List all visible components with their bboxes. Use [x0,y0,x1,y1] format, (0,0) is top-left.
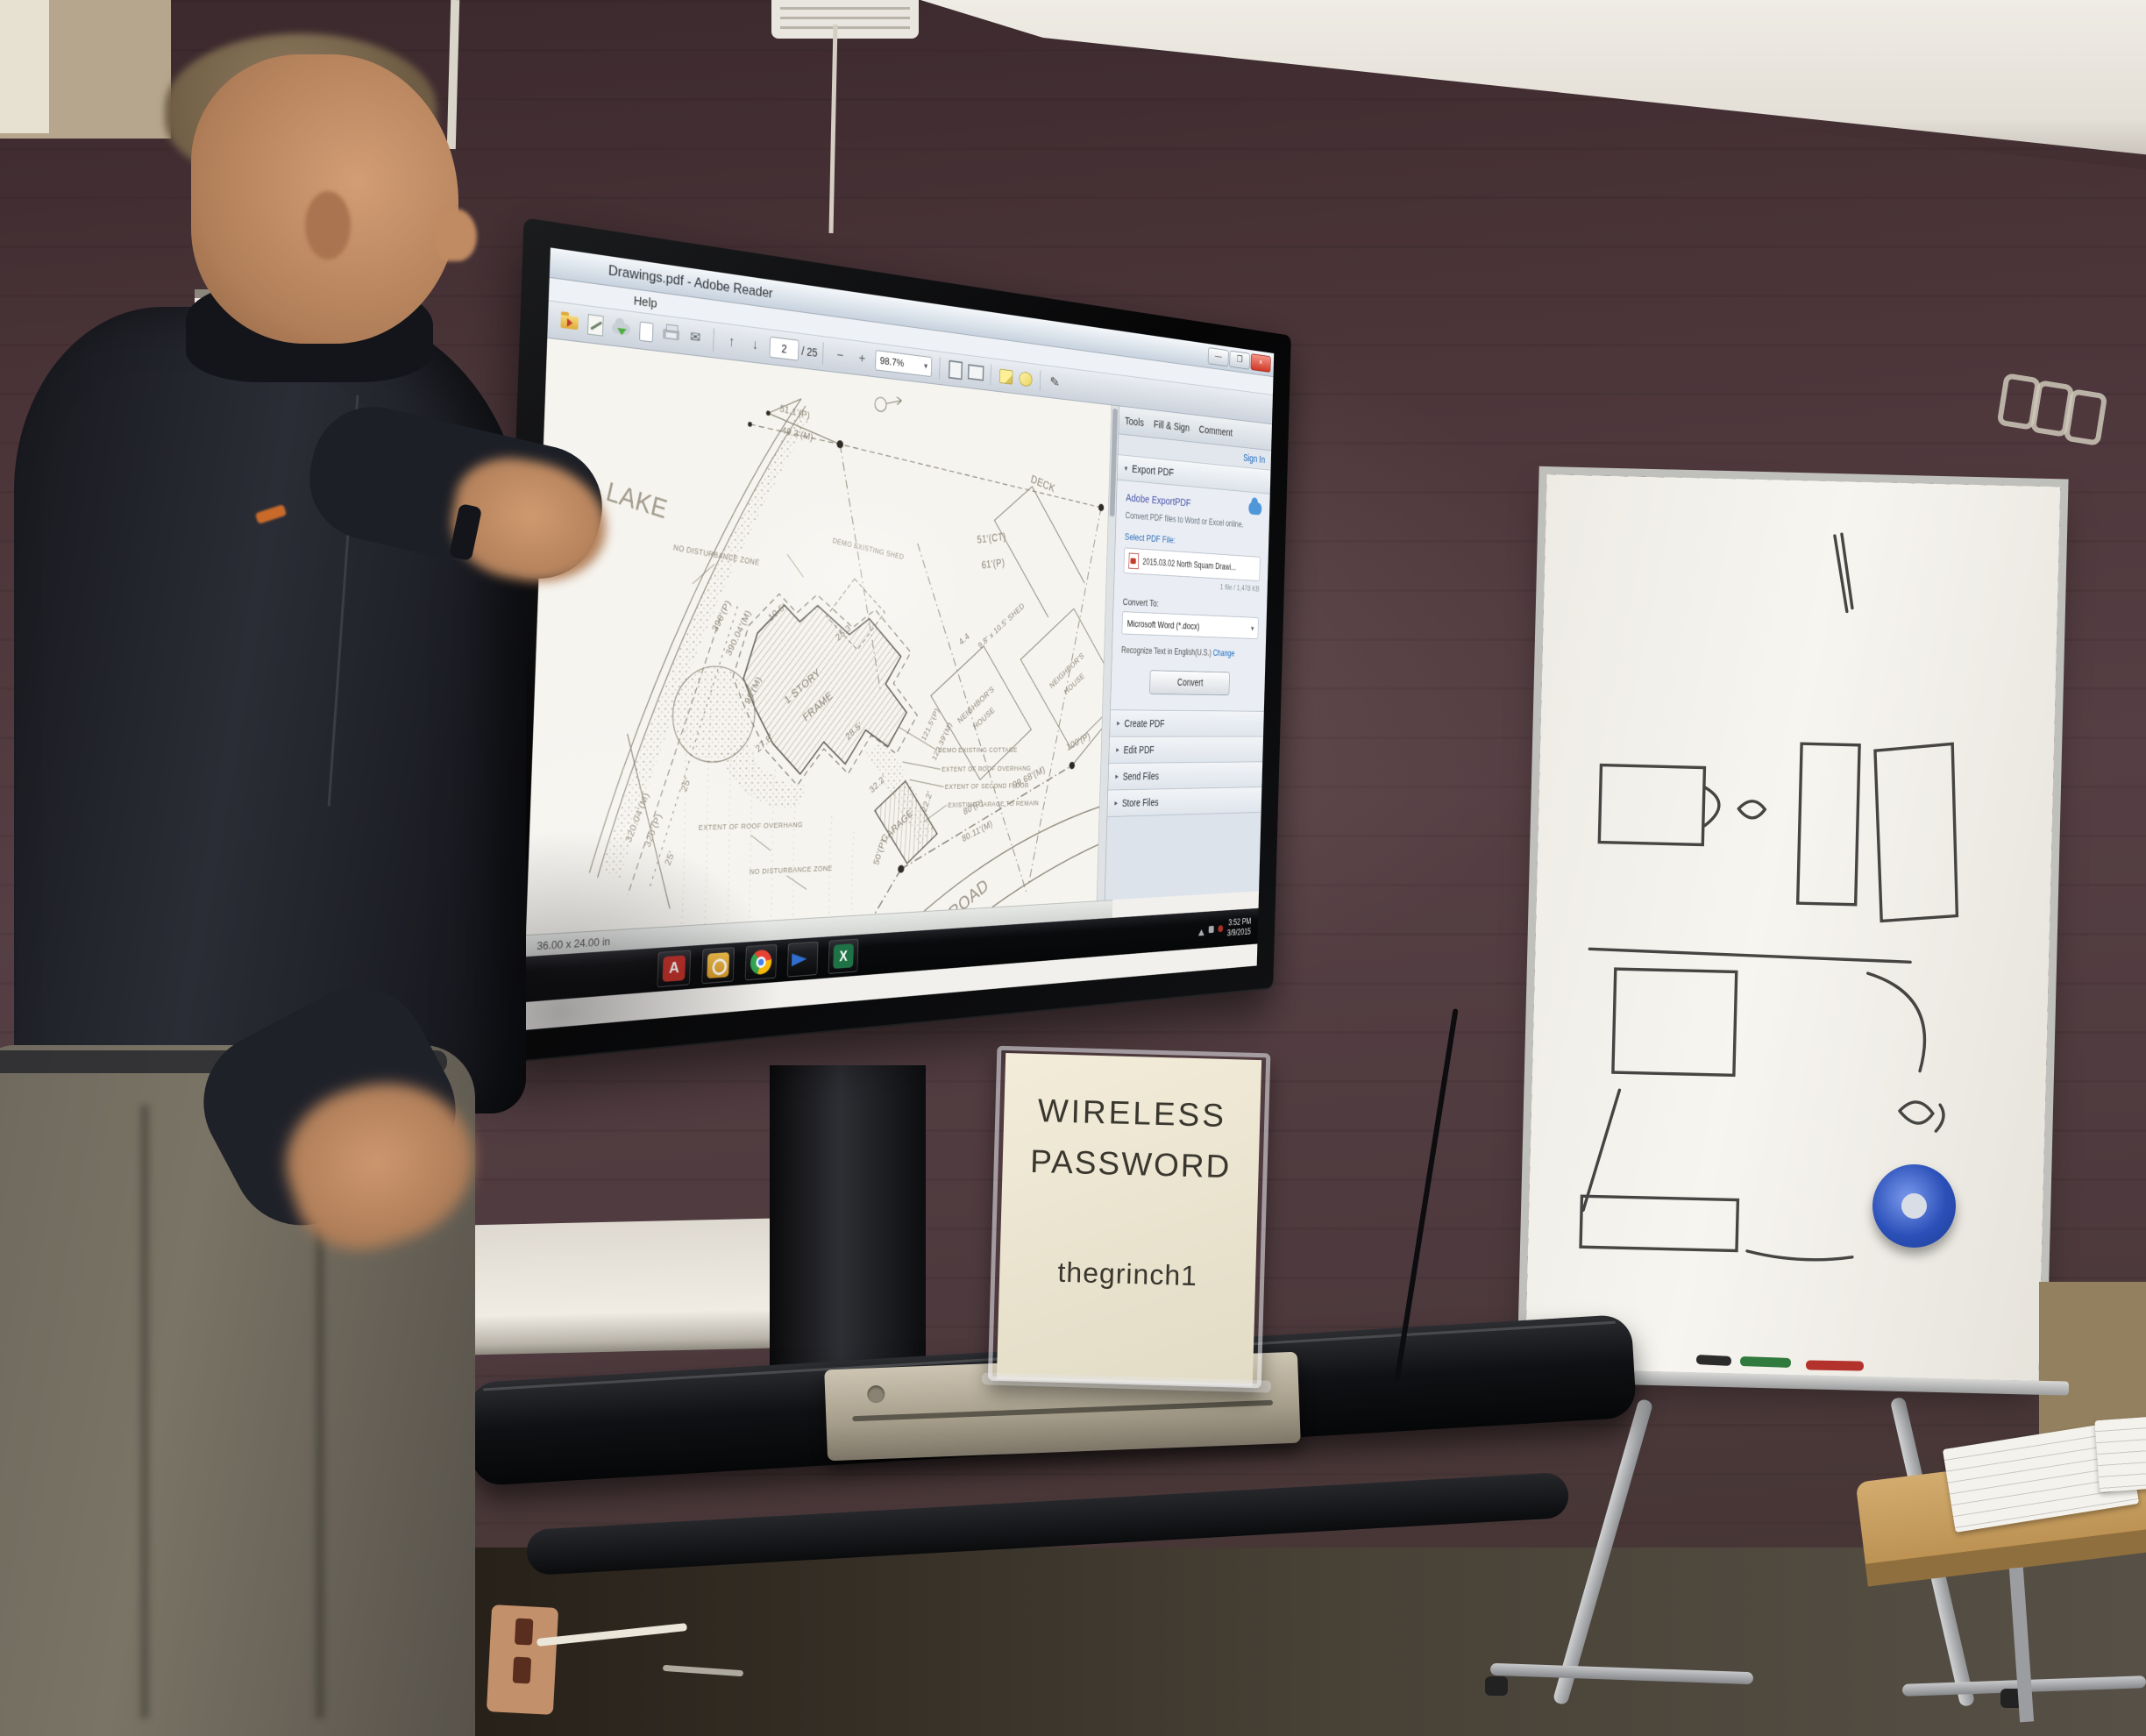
export-pdf-title: Export PDF [1132,463,1174,479]
convert-to-label: Convert To: [1123,596,1260,613]
taskbar-icon-smart-notebook[interactable] [787,942,819,978]
red-marker [1806,1360,1864,1370]
selected-file-name: 2015.03.02 North Squam Drawi... [1142,557,1236,573]
black-marker [1696,1355,1732,1366]
whiteboard-marker-sketch [1525,474,2061,1381]
taskbar-icon-outlook[interactable] [701,947,735,984]
section-send-files-label: Send Files [1123,770,1159,782]
tab-tools[interactable]: Tools [1125,415,1144,429]
product-name: Adobe ExportPDF [1126,491,1190,509]
chevron-right-icon: ▸ [1115,772,1119,781]
zoom-level-value: 98.7% [880,352,905,374]
plan-label-extent-roof: EXTENT OF ROOF OVERHANG [942,765,1031,773]
tray-network-icon [1209,926,1214,933]
classroom-scene: Drawings.pdf - Adobe Reader — ❐ × Help [0,0,2146,1736]
paper-sheet [2094,1413,2146,1492]
section-edit-pdf-label: Edit PDF [1124,744,1155,756]
chevron-down-icon: ▾ [1125,463,1128,473]
smart-notebook-icon [792,952,814,966]
selected-file-box[interactable]: 2015.03.02 North Squam Drawi... [1124,548,1261,581]
tools-panel: Tools Fill & Sign Comment Sign In ▾ Expo… [1105,406,1272,900]
highlighter-icon [1019,371,1032,387]
pants-seam [140,1105,149,1718]
system-tray[interactable]: 3:52 PM 3/9/2015 [1197,908,1253,949]
section-send-files[interactable]: ▸ Send Files [1108,762,1262,790]
next-page-button[interactable]: ↓ [745,333,765,358]
wireless-password-sign: WIRELESS PASSWORD thegrinch1 [997,1053,1261,1386]
chevron-right-icon: ▸ [1117,719,1120,729]
export-pdf-body: Adobe ExportPDF Convert PDF files to Wor… [1111,480,1270,712]
signature-button[interactable]: ✎ [1047,372,1063,394]
fit-width-icon [949,360,963,381]
outlook-icon [707,952,729,978]
fit-page-icon [968,364,984,381]
blue-tape-roll [1872,1164,1956,1248]
page-total-label: / 25 [801,345,818,359]
taskbar-clock[interactable]: 3:52 PM 3/9/2015 [1227,916,1254,939]
taskbar-icon-chrome[interactable] [745,944,778,981]
change-link[interactable]: Change [1213,648,1235,658]
previous-page-button[interactable]: ↑ [721,330,742,354]
section-create-pdf[interactable]: ▸ Create PDF [1110,710,1264,736]
tab-comment[interactable]: Comment [1199,423,1233,439]
ac-vent-unit [771,0,919,39]
convert-button[interactable]: Convert [1149,670,1230,695]
section-store-files-label: Store Files [1122,796,1159,808]
signature-pen-icon: ✎ [1049,374,1060,391]
fit-page-button[interactable] [967,361,984,384]
presenter [0,18,684,1736]
sticky-note-button[interactable] [998,366,1014,388]
tv-cart-column [770,1065,926,1398]
highlight-button[interactable] [1018,367,1034,389]
chevron-right-icon: ▸ [1116,745,1119,755]
tray-show-hidden-icon[interactable] [1198,925,1204,936]
acrylic-sign-holder [988,1046,1271,1389]
file-meta: 1 file / 1,478 KB [1123,578,1259,594]
close-button[interactable]: × [1251,353,1271,373]
maximize-button[interactable]: ❐ [1229,351,1250,370]
zoom-level-select[interactable]: 98.7% ▾ [875,350,932,377]
convert-format-select[interactable]: Microsoft Word (*.docx) ▾ [1122,611,1259,639]
convert-format-value: Microsoft Word (*.docx) [1127,618,1200,631]
whiteboard-caster-1 [1485,1676,1508,1696]
green-marker [1740,1356,1791,1368]
recognize-text-label: Recognize Text in English(U.S.) [1121,645,1212,658]
section-edit-pdf[interactable]: ▸ Edit PDF [1109,736,1263,764]
cloud-icon [1248,502,1261,515]
tab-fill-sign[interactable]: Fill & Sign [1154,418,1190,434]
sticky-note-icon [999,368,1013,384]
fit-width-button[interactable] [947,359,964,381]
tray-notification-icon [1218,925,1223,932]
zoom-in-button[interactable]: + [853,346,871,370]
email-button[interactable]: ✉ [685,325,706,350]
clock-date: 3/9/2015 [1227,927,1251,939]
minimize-button[interactable]: — [1208,347,1229,366]
chevron-down-icon: ▾ [1251,623,1254,632]
chevron-down-icon: ▾ [924,357,928,375]
zoom-out-button[interactable]: − [831,344,849,367]
excel-icon: X [833,943,854,969]
section-create-pdf-label: Create PDF [1124,717,1164,729]
chevron-right-icon: ▸ [1114,799,1118,808]
presenter-profile [437,209,477,261]
sign-in-link[interactable]: Sign In [1243,452,1265,465]
page-number-input[interactable]: 2 [769,337,799,361]
chrome-icon [750,950,772,976]
pdf-file-icon [1129,553,1140,570]
panel-empty-space [1105,813,1261,900]
taskbar-icon-excel[interactable]: X [828,939,859,974]
presenter-ear [305,191,351,260]
plan-label-demo-cottage: DEMO EXISTING COTTAGE [938,746,1018,754]
mobile-whiteboard [1525,474,2061,1381]
